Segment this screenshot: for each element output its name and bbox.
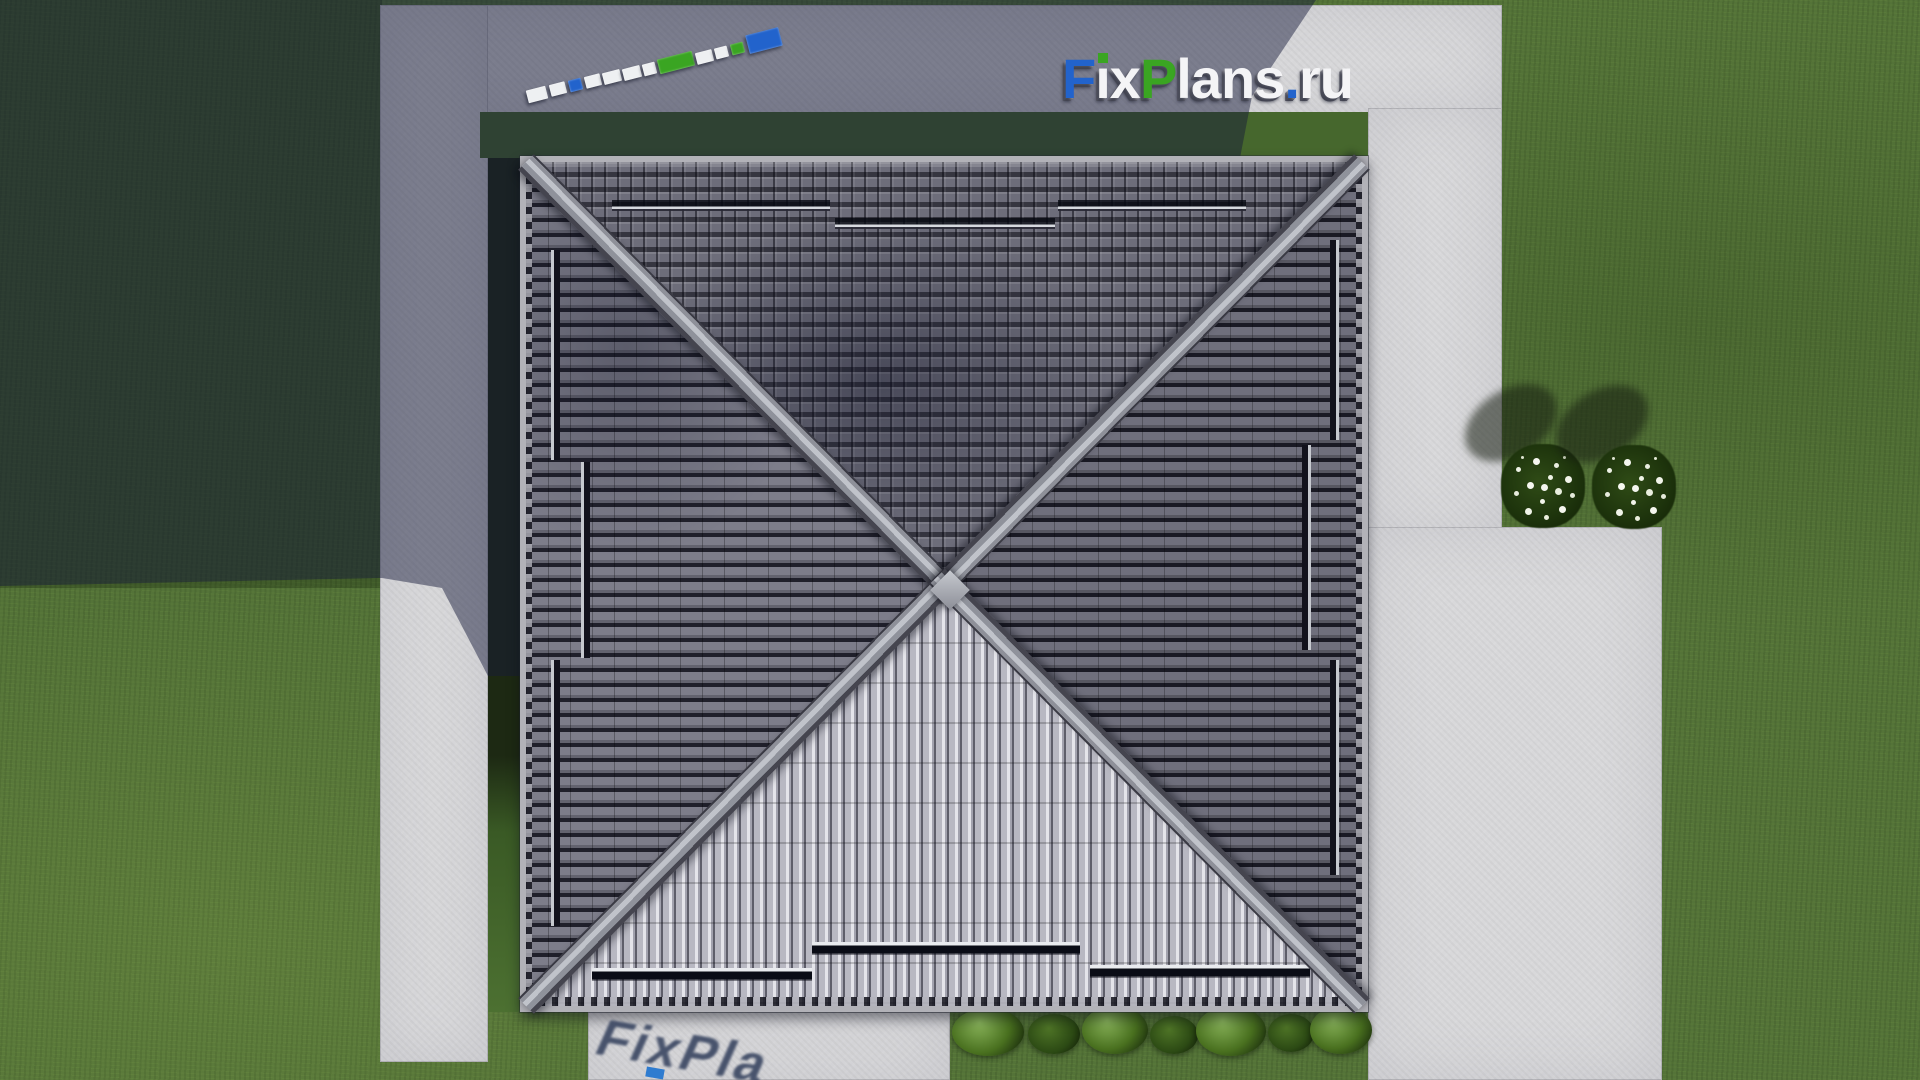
snow-guard	[1090, 965, 1310, 978]
hedge-bush	[1268, 1014, 1314, 1052]
fixplans-watermark: FıxPlans.ru	[1062, 46, 1353, 111]
hedge-bush	[1310, 1006, 1372, 1054]
hedge-bush	[1196, 1006, 1266, 1056]
watermark-letter: F	[1062, 46, 1095, 111]
watermark-letter: s	[1254, 46, 1284, 111]
watermark-letter: n	[1221, 46, 1254, 111]
hedge-bush	[1028, 1014, 1080, 1054]
roof-eave-top	[526, 162, 1362, 167]
snow-guard	[812, 942, 1080, 955]
snow-guard	[1330, 240, 1339, 440]
roof-eave-left	[526, 162, 532, 1006]
watermark-letter: u	[1320, 46, 1353, 111]
watermark-letter: P	[1140, 46, 1176, 111]
flower-bush	[1586, 439, 1682, 535]
flower-petals	[1632, 485, 1639, 492]
walkway-right	[1368, 108, 1502, 540]
roof-tiles	[526, 162, 1362, 1006]
watermark-letter: ı	[1095, 46, 1110, 111]
snow-guard	[1058, 200, 1246, 211]
render-canvas: FıxPlans.ru FixPla	[0, 0, 1920, 1080]
snow-guard	[1302, 445, 1311, 650]
watermark-letter: r	[1299, 46, 1320, 111]
snow-guard	[592, 968, 812, 981]
roof	[520, 156, 1368, 1012]
watermark-letter: .	[1284, 46, 1299, 111]
snow-guard	[835, 218, 1055, 229]
hedge-bush	[1082, 1006, 1148, 1054]
snow-guard	[551, 660, 560, 926]
watermark-letter: l	[1176, 46, 1191, 111]
patio-right	[1368, 527, 1662, 1080]
snow-guard	[1330, 660, 1339, 875]
roof-eave-right	[1356, 162, 1362, 1006]
watermark-letter: x	[1110, 46, 1140, 111]
hedge-bush	[952, 1008, 1024, 1056]
roof-eave-bottom	[526, 997, 1362, 1006]
watermark-letter: a	[1191, 46, 1221, 111]
snow-guard	[581, 462, 590, 658]
snow-guard	[612, 200, 830, 211]
flower-petals	[1541, 484, 1548, 491]
hedge-bush	[1150, 1016, 1198, 1054]
snow-guard	[551, 250, 560, 460]
